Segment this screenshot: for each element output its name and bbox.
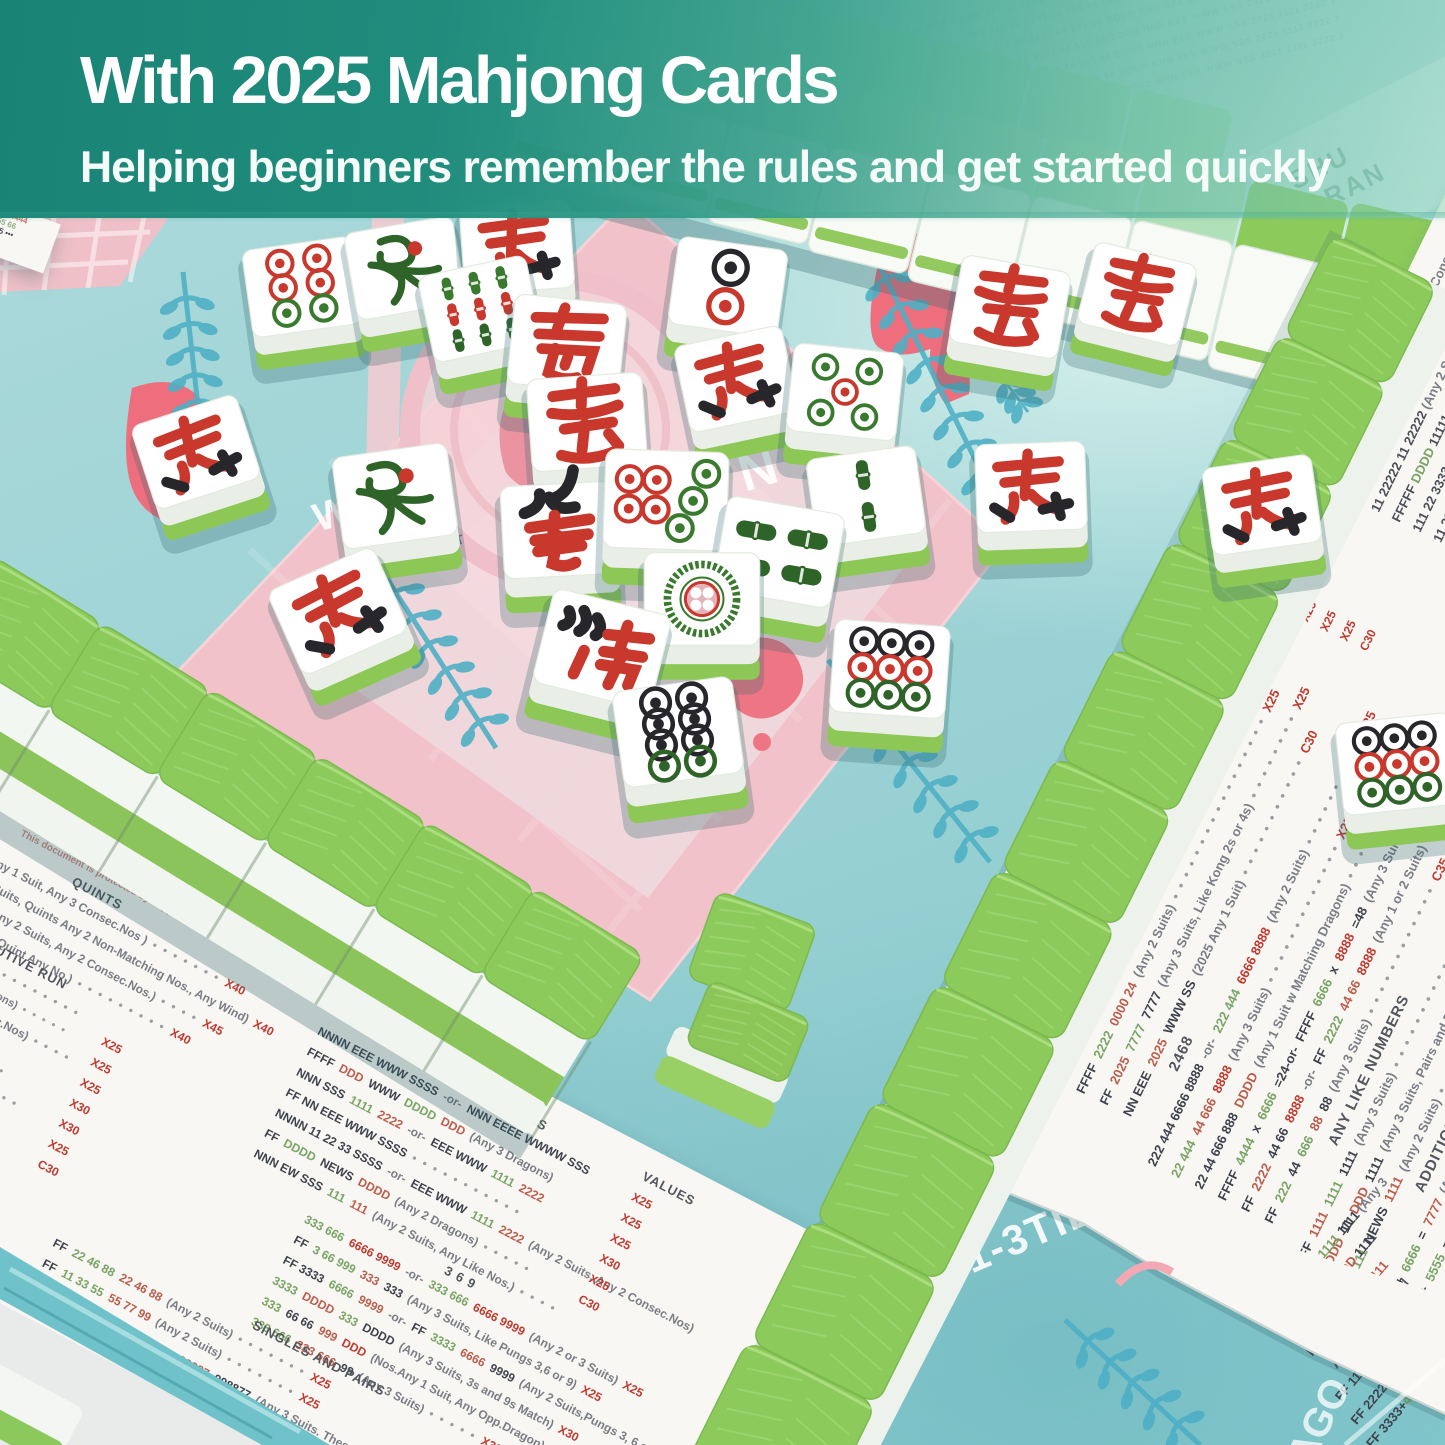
svg-text:AGO: AGO bbox=[1279, 1371, 1360, 1445]
